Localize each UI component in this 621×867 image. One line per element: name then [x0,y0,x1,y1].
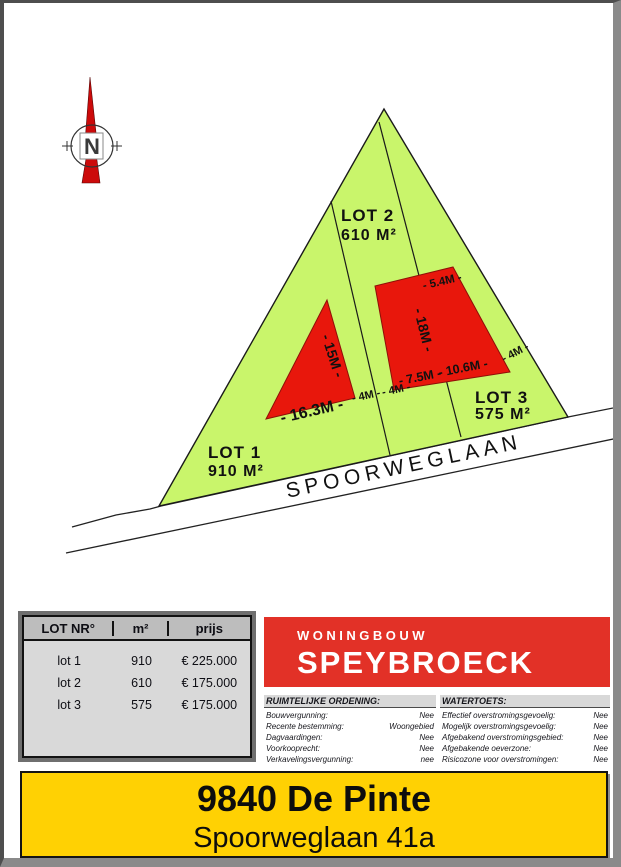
lot2-area: 610 M² [341,227,397,244]
lot3-label: LOT 3 [475,388,528,407]
address-street: Spoorweglaan 41a [22,822,606,855]
legal-row: Afgebakende oeverzone: Nee [440,743,610,754]
lot2-label: LOT 2 [341,206,394,225]
legal-value: Nee [593,710,608,721]
legal-label: Afgebakend overstromingsgebied: [442,732,563,743]
legal-row: Bouwvergunning: Nee [264,710,436,721]
m2-cell: 610 [114,676,168,690]
address-banner: 9840 De Pinte Spoorweglaan 41a [20,771,608,858]
legal-value: Nee [593,743,608,754]
legal-value: Woongebied [389,721,434,732]
legal-row: Voorkooprecht: Nee [264,743,436,754]
legal-row: Verkavelingsvergunning: nee [264,754,436,765]
compass-needle-top [85,77,97,142]
price-table-header-lot: LOT NR° [24,621,114,636]
legal-section-ruimtelijke-ordening: RUIMTELIJKE ORDENING: Bouwvergunning: Ne… [264,695,436,765]
legal-value: Nee [593,754,608,765]
legal-label: Effectief overstromingsgevoelig: [442,710,555,721]
price-table: LOT NR° m² prijs lot 1 910 € 225.000 lot… [22,615,252,758]
lot-cell: lot 3 [24,698,114,712]
legal-row: Effectief overstromingsgevoelig: Nee [440,710,610,721]
legal-label: Verkavelingsvergunning: [266,754,353,765]
site-plan: N LOT 1 910 M² LOT 2 610 M² LOT 3 575 M²… [4,3,621,613]
legal-label: Recente bestemming: [266,721,344,732]
legal-row: Afgebakend overstromingsgebied: Nee [440,732,610,743]
price-cell: € 225.000 [169,654,250,668]
price-table-header-price: prijs [169,621,250,636]
legal-label: Dagvaardingen: [266,732,322,743]
m2-cell: 575 [114,698,168,712]
price-cell: € 175.000 [169,698,250,712]
legal-value: Nee [419,710,434,721]
price-table-body: lot 1 910 € 225.000 lot 2 610 € 175.000 … [24,641,250,716]
price-cell: € 175.000 [169,676,250,690]
m2-cell: 910 [114,654,168,668]
compass-label: N [84,134,100,159]
lot3-area: 575 M² [475,406,531,423]
legal-row: Mogelijk overstromingsgevoelig: Nee [440,721,610,732]
legal-section-title: RUIMTELIJKE ORDENING: [264,695,436,708]
price-table-header-m2: m² [114,621,168,636]
builder-logo-name: SPEYBROECK [297,645,610,681]
lot-cell: lot 2 [24,676,114,690]
legal-row: Dagvaardingen: Nee [264,732,436,743]
price-table-header: LOT NR° m² prijs [24,617,250,641]
builder-logo: WONINGBOUW SPEYBROECK [264,617,610,687]
legal-value: Nee [593,721,608,732]
plan-document-page: N LOT 1 910 M² LOT 2 610 M² LOT 3 575 M²… [0,0,621,867]
table-row: lot 3 575 € 175.000 [24,694,250,716]
legal-label: Afgebakende oeverzone: [442,743,531,754]
address-city: 9840 De Pinte [22,778,606,820]
legal-value: Nee [419,732,434,743]
table-row: lot 1 910 € 225.000 [24,650,250,672]
lot-cell: lot 1 [24,654,114,668]
legal-value: Nee [593,732,608,743]
legal-section-title: WATERTOETS: [440,695,610,708]
legal-label: Mogelijk overstromingsgevoelig: [442,721,556,732]
legal-value: Nee [419,743,434,754]
table-row: lot 2 610 € 175.000 [24,672,250,694]
legal-row: Risicozone voor overstromingen: Nee [440,754,610,765]
north-compass: N [62,77,122,183]
legal-label: Risicozone voor overstromingen: [442,754,559,765]
builder-logo-subtitle: WONINGBOUW [297,628,610,643]
legal-value: nee [421,754,434,765]
legal-section-watertoets: WATERTOETS: Effectief overstromingsgevoe… [440,695,610,765]
lot1-label: LOT 1 [208,443,261,462]
lot1-area: 910 M² [208,463,264,480]
legal-label: Voorkooprecht: [266,743,320,754]
legal-row: Recente bestemming: Woongebied [264,721,436,732]
legal-label: Bouwvergunning: [266,710,328,721]
